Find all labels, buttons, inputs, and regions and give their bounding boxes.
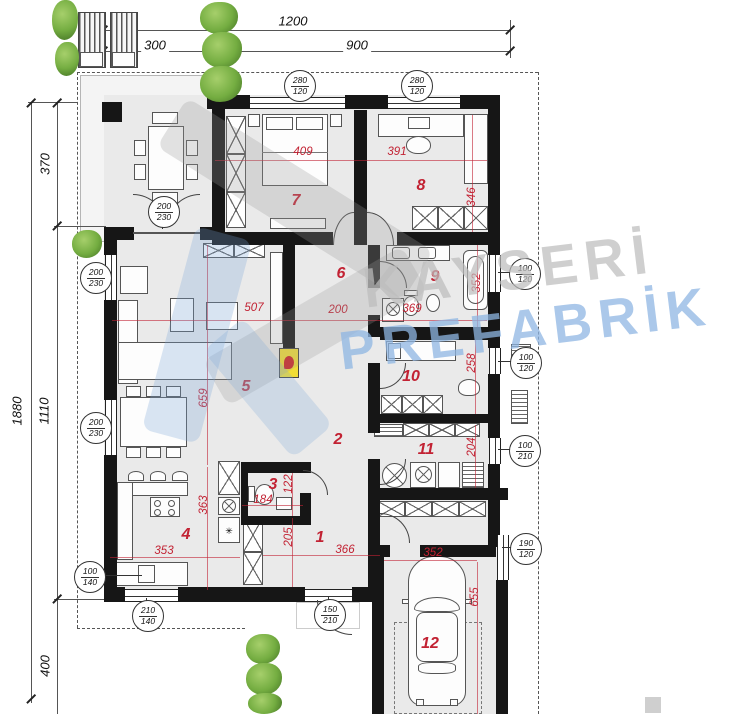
room-dimension: 346 <box>466 187 478 206</box>
pillow <box>296 117 323 130</box>
wardrobe <box>381 395 402 414</box>
room-dimension: 122 <box>283 474 295 493</box>
chair <box>126 447 141 458</box>
window-size-marker: 200230 <box>148 196 180 228</box>
shrub-icon <box>246 634 280 664</box>
floor-plan: ✳ <box>0 0 751 714</box>
fridge: ✳ <box>218 517 240 543</box>
kitchen-sink <box>138 565 155 583</box>
window-size-marker: 210140 <box>132 600 164 632</box>
window-size-marker: 200230 <box>80 262 112 294</box>
window-size-marker: 280120 <box>401 70 433 102</box>
window-size-marker: 100140 <box>74 561 106 593</box>
car-rear-window <box>418 662 456 674</box>
utility-pad <box>645 697 661 713</box>
car-wheel <box>450 699 458 706</box>
room-dimension: 205 <box>283 527 295 546</box>
counter <box>117 482 133 560</box>
site-dimension: 1200 <box>276 14 311 29</box>
hall-closet <box>243 552 263 585</box>
pillow <box>266 117 293 130</box>
chair <box>134 164 146 180</box>
wardrobe <box>423 395 443 414</box>
bar-stool <box>150 471 166 481</box>
chair <box>166 447 181 458</box>
tree-icon <box>55 42 79 76</box>
bar-stool <box>172 471 188 481</box>
window-size-marker: 100210 <box>509 435 541 467</box>
monitor <box>408 117 430 129</box>
site-dimension: 400 <box>38 652 53 680</box>
wardrobe <box>455 423 480 437</box>
room-dimension: 352 <box>423 547 442 559</box>
room-number: 4 <box>182 526 191 544</box>
room-dimension: 409 <box>293 146 312 158</box>
hall-wardrobe <box>432 501 459 517</box>
chair <box>134 140 146 156</box>
hall-wardrobe <box>405 501 432 517</box>
tree-icon <box>52 0 78 40</box>
bar-stool <box>128 471 144 481</box>
window-size-marker: 190120 <box>510 533 542 565</box>
wardrobe <box>402 395 423 414</box>
window-size-marker: 280120 <box>284 70 316 102</box>
desk-chair <box>406 136 431 154</box>
room-dimension: 204 <box>466 437 478 456</box>
ac-unit <box>511 390 528 424</box>
room-dimension: 366 <box>335 544 354 556</box>
wardrobe <box>412 206 438 230</box>
chair <box>126 386 141 397</box>
site-dimension: 370 <box>38 150 53 178</box>
car-wheel <box>416 699 424 706</box>
sink <box>276 497 292 510</box>
chair <box>146 447 161 458</box>
room-number: 1 <box>316 529 325 547</box>
room-number: 12 <box>421 635 439 653</box>
wardrobe <box>429 423 455 437</box>
nightstand <box>248 114 260 127</box>
armchair <box>120 266 148 294</box>
room-dimension: 353 <box>154 545 173 557</box>
room-dimension: 391 <box>387 146 406 158</box>
room-dimension: 507 <box>244 302 263 314</box>
hall-wardrobe <box>459 501 486 517</box>
room-dimension: 655 <box>469 587 481 606</box>
site-dimension: 1110 <box>37 395 52 428</box>
radiator <box>462 462 484 488</box>
room-dimension: 184 <box>253 494 272 506</box>
site-dimension: 1880 <box>10 394 25 429</box>
room-number: 11 <box>418 441 435 459</box>
window-size-marker: 150210 <box>314 599 346 631</box>
tall-cabinet <box>218 461 240 495</box>
site-dimension: 900 <box>343 38 371 53</box>
tree-icon <box>202 32 242 68</box>
window-size-marker: 200230 <box>80 412 112 444</box>
wardrobe <box>464 206 488 230</box>
room-number: 2 <box>334 431 343 449</box>
wardrobe <box>438 206 464 230</box>
room-number: 3 <box>269 476 278 494</box>
nightstand <box>330 114 342 127</box>
room-number: 8 <box>417 177 426 195</box>
utility-sink <box>438 462 460 488</box>
car-mirror <box>402 599 409 604</box>
room-dimension: 363 <box>198 495 210 514</box>
column <box>102 102 122 122</box>
stool <box>458 379 480 396</box>
shrub-icon <box>246 663 282 695</box>
site-dimension: 300 <box>141 38 169 53</box>
wardrobe <box>403 423 429 437</box>
tree-icon <box>72 230 102 258</box>
cabinet <box>464 114 488 184</box>
shrub-icon <box>248 693 282 714</box>
